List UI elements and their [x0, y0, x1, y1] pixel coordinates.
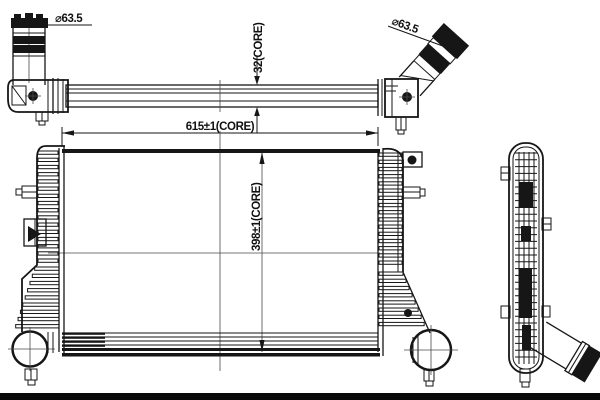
core-depth-text: 32(CORE) [253, 22, 265, 73]
rib [38, 252, 58, 255]
dimension-core-height: 398±1(CORE) [251, 152, 265, 352]
rib [25, 296, 59, 299]
right-tank-ribs [379, 153, 424, 326]
rib [62, 340, 105, 342]
rib [23, 303, 59, 306]
technical-drawing: ⌀63.5 [0, 0, 600, 400]
rib [35, 267, 59, 270]
left-inlet-pipe [8, 13, 68, 125]
rib [379, 322, 424, 325]
rib [62, 332, 105, 334]
core [48, 149, 380, 357]
top-view: ⌀63.5 [8, 13, 469, 134]
rib [30, 281, 59, 284]
watermark-bar [0, 393, 600, 400]
rib [379, 308, 418, 311]
drawing-canvas: ⌀63.5 [0, 0, 600, 400]
rib [62, 336, 105, 338]
rib [38, 165, 58, 168]
dimension-core-depth: 32(CORE) [253, 22, 265, 133]
right-tank-taper [403, 272, 430, 333]
rib [62, 344, 105, 346]
right-inlet-pipe [378, 23, 469, 134]
right-pipe-neck [397, 23, 469, 98]
core-height-text: 398±1(CORE) [251, 182, 263, 251]
rib [38, 237, 58, 240]
rib [38, 230, 58, 233]
rib [38, 187, 58, 190]
core-top-edge [62, 149, 380, 153]
rib [38, 201, 58, 204]
rib [28, 289, 59, 292]
rib [38, 180, 58, 183]
core-bottom-edge [62, 353, 380, 357]
rib [32, 274, 59, 277]
rib [38, 209, 58, 212]
left-tank [8, 146, 65, 385]
rib [38, 194, 58, 197]
side-bottom-tab [520, 369, 530, 382]
front-view: 615±1(CORE) 398±1(CORE) [8, 121, 458, 386]
rib [38, 259, 58, 262]
left-diameter-text: ⌀63.5 [55, 13, 83, 25]
side-outlet-pipe [530, 320, 600, 382]
rib [38, 158, 58, 161]
rib [18, 317, 59, 320]
rib [20, 310, 59, 313]
core-top-profile [66, 80, 378, 112]
side-view [501, 143, 600, 387]
right-tank [378, 148, 458, 386]
rib [38, 223, 58, 226]
rib [38, 151, 58, 154]
rib [379, 315, 421, 318]
rib [379, 294, 412, 297]
rib [379, 301, 415, 304]
right-diameter-text: ⌀63.5 [390, 16, 421, 37]
rib [38, 173, 58, 176]
